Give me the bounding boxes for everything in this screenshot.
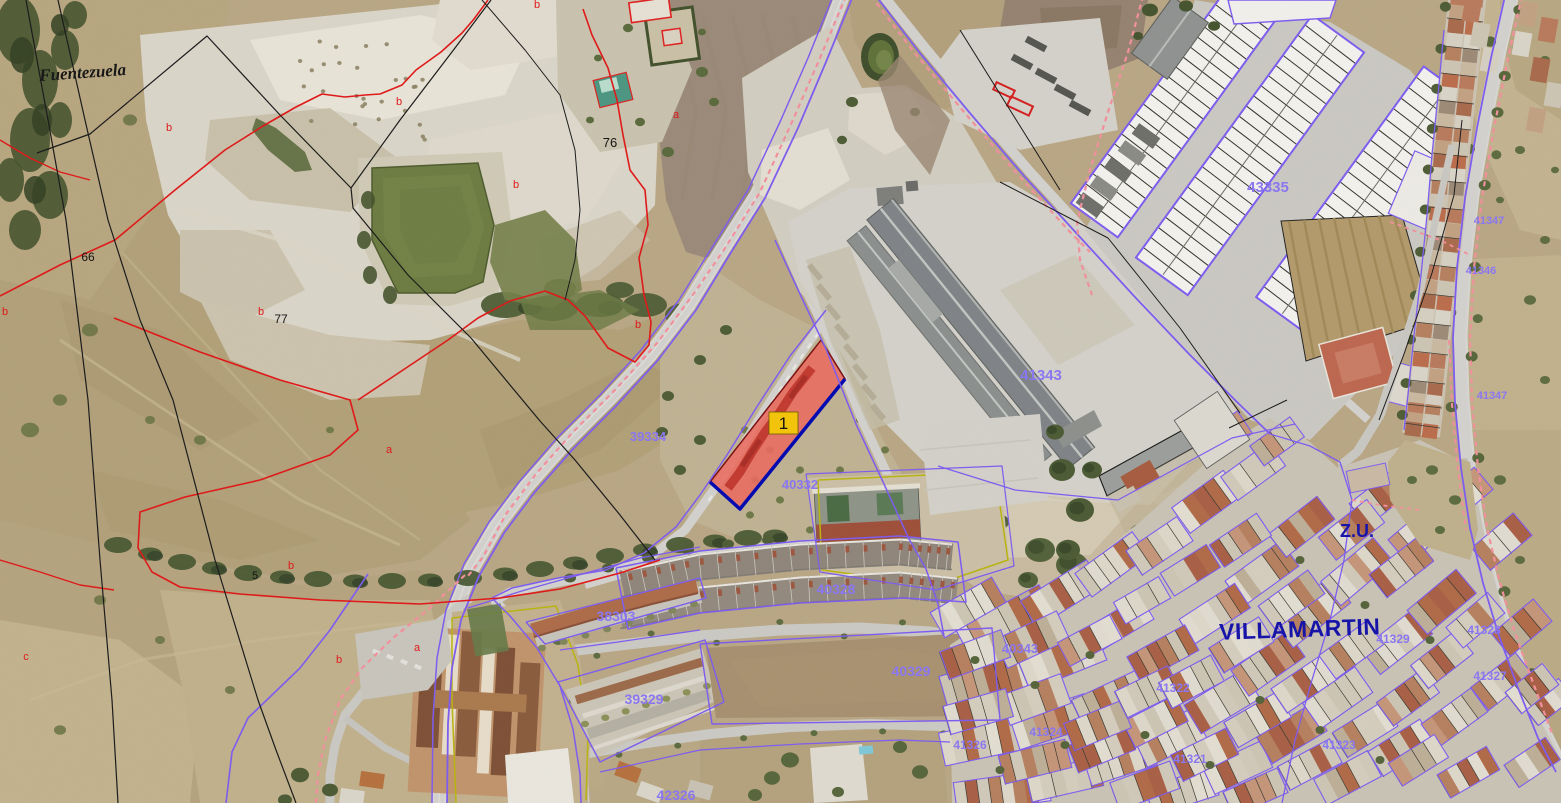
svg-text:38303: 38303 <box>597 608 636 624</box>
svg-text:42326: 42326 <box>657 787 696 803</box>
svg-text:b: b <box>513 179 519 191</box>
svg-text:1: 1 <box>779 414 788 433</box>
svg-text:41328: 41328 <box>1467 623 1501 637</box>
svg-text:b: b <box>336 654 342 666</box>
svg-text:b: b <box>396 96 402 108</box>
svg-text:a: a <box>386 444 393 456</box>
svg-text:41322: 41322 <box>1156 681 1190 695</box>
svg-text:43335: 43335 <box>1247 179 1289 196</box>
svg-text:5: 5 <box>252 570 258 582</box>
svg-text:40343: 40343 <box>1002 641 1038 656</box>
svg-text:41327: 41327 <box>1473 669 1507 683</box>
svg-text:76: 76 <box>603 135 617 150</box>
svg-text:40332: 40332 <box>782 477 818 492</box>
svg-text:41324: 41324 <box>1029 725 1063 739</box>
svg-text:41343: 41343 <box>1020 367 1062 384</box>
svg-text:b: b <box>534 0 540 11</box>
svg-text:39334: 39334 <box>630 429 667 444</box>
svg-text:41321: 41321 <box>1173 752 1207 766</box>
svg-text:41326: 41326 <box>953 738 987 752</box>
svg-text:41346: 41346 <box>1466 265 1497 277</box>
svg-text:b: b <box>635 319 641 331</box>
svg-text:b: b <box>258 306 264 318</box>
svg-text:41347: 41347 <box>1477 390 1508 402</box>
svg-text:a: a <box>414 642 421 654</box>
svg-text:66: 66 <box>81 250 95 264</box>
svg-text:41347: 41347 <box>1474 215 1505 227</box>
svg-text:b: b <box>166 122 172 134</box>
svg-text:41323: 41323 <box>1322 738 1356 752</box>
svg-text:b: b <box>2 306 8 318</box>
svg-text:40328: 40328 <box>817 581 856 597</box>
svg-text:39329: 39329 <box>625 691 664 707</box>
svg-text:Z.U.: Z.U. <box>1340 521 1374 541</box>
svg-text:40329: 40329 <box>892 663 931 679</box>
svg-text:41329: 41329 <box>1376 632 1410 646</box>
svg-text:c: c <box>23 651 29 663</box>
svg-text:a: a <box>673 109 680 121</box>
svg-text:b: b <box>288 560 294 572</box>
svg-text:77: 77 <box>274 312 288 326</box>
